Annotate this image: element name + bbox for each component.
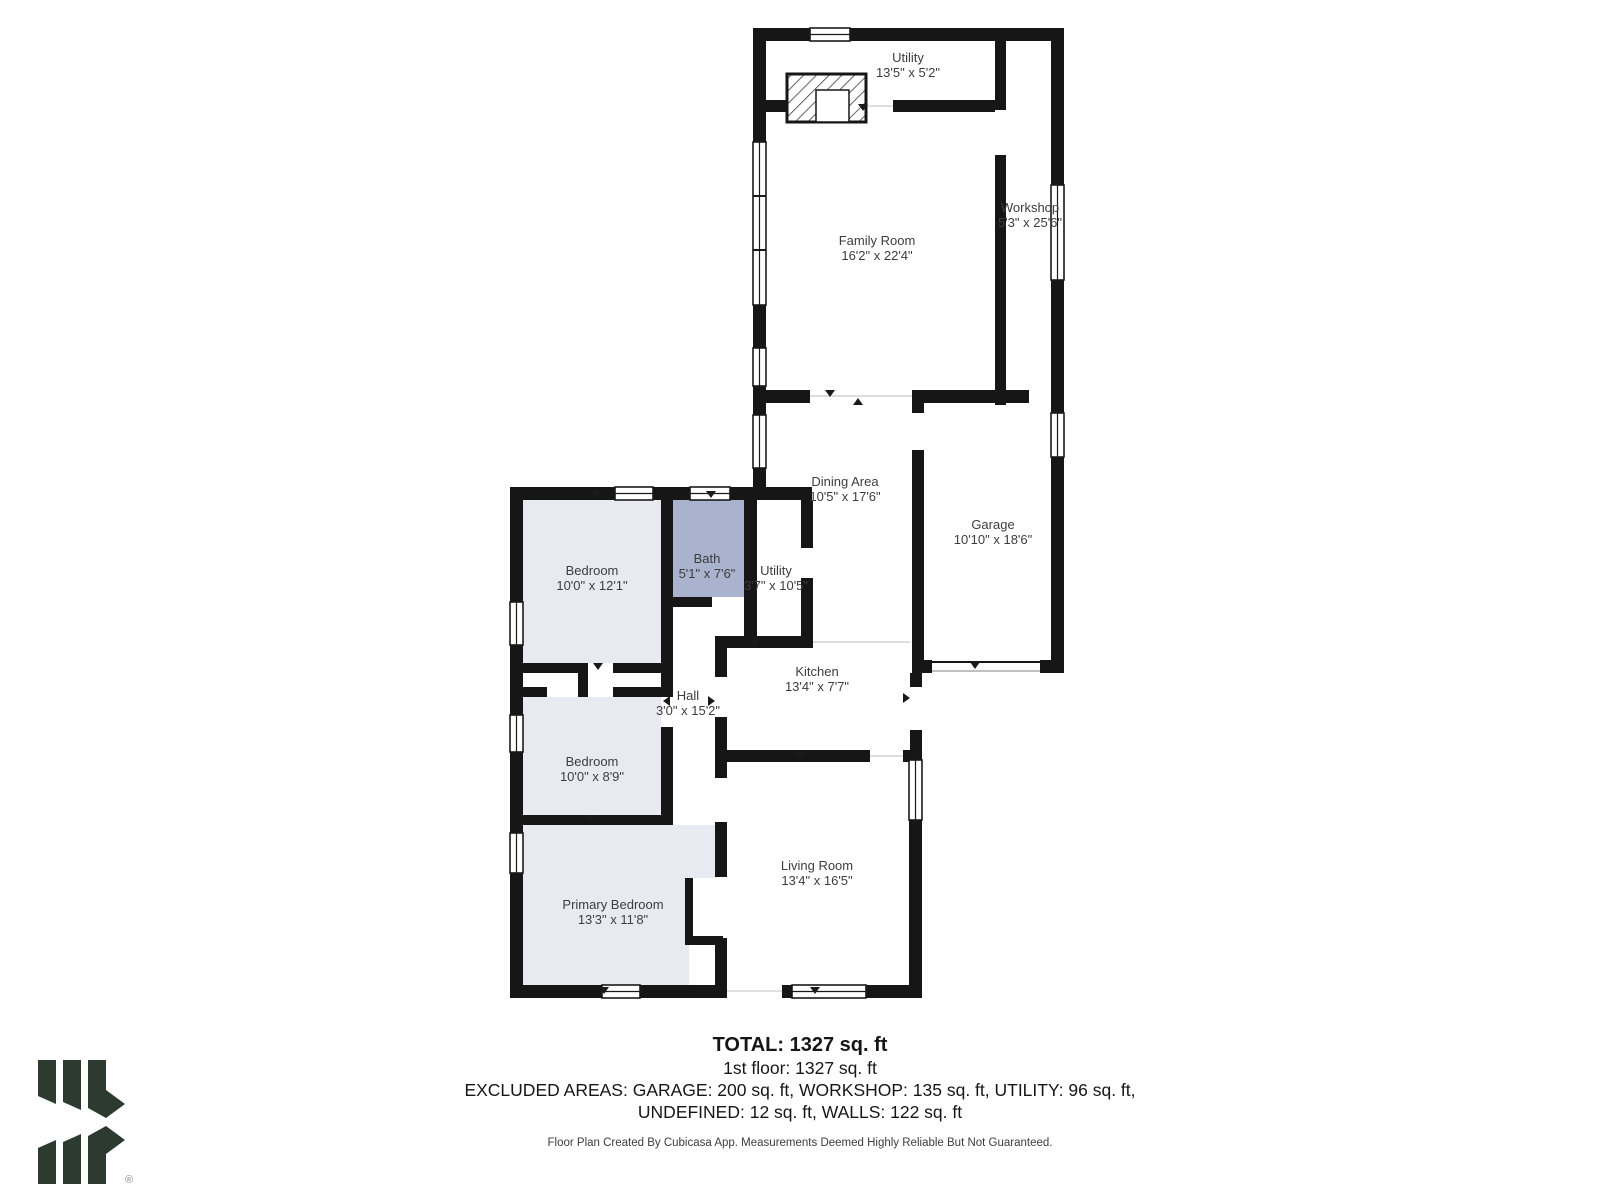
total-area: TOTAL: 1327 sq. ft (0, 1033, 1600, 1057)
fireplace (787, 74, 866, 122)
window (510, 833, 523, 873)
wall-segment (766, 390, 810, 403)
window (1051, 413, 1064, 457)
area-summary: TOTAL: 1327 sq. ft 1st floor: 1327 sq. f… (0, 1033, 1600, 1123)
wall-segment (995, 28, 1006, 110)
floor-plan-page: Utility 13'5" x 5'2" Family Room 16'2" x… (0, 0, 1600, 1200)
wall-segment (893, 100, 995, 112)
excluded-areas-line2: UNDEFINED: 12 sq. ft, WALLS: 122 sq. ft (0, 1101, 1600, 1123)
wall-segment (613, 687, 673, 697)
window (909, 760, 922, 820)
registered-mark-icon: ® (125, 1174, 133, 1186)
room-dims-bedroom-1: 10'0" x 12'1" (556, 578, 628, 593)
wall-segment (801, 500, 813, 548)
wall-segment (753, 28, 1064, 41)
wall-segment (909, 820, 922, 998)
room-dims-kitchen: 13'4" x 7'7" (785, 679, 849, 694)
room-label-bath: Bath (694, 551, 721, 566)
cubicasa-logo: ® (36, 1060, 136, 1186)
window (510, 602, 523, 645)
room-dims-bedroom-2: 10'0" x 8'9" (560, 769, 624, 784)
wall-segment (995, 155, 1006, 405)
room-label-workshop: Workshop (1001, 200, 1059, 215)
wall-segment (866, 985, 922, 998)
wall-segment (912, 660, 932, 673)
wall-segment (782, 985, 792, 998)
room-dims-hall: 3'0" x 15'2" (656, 703, 720, 718)
window (792, 985, 866, 998)
wall-segment (910, 730, 922, 762)
room-dims-utility-2: 3'7" x 10'5" (744, 578, 808, 593)
wall-segment (578, 663, 588, 697)
bath-fill (673, 500, 744, 597)
room-label-living-room: Living Room (781, 858, 853, 873)
wall-segment (912, 450, 924, 673)
wall-segment (912, 390, 1029, 403)
room-dims-garage: 10'10" x 18'6" (954, 532, 1033, 547)
disclaimer-text: Floor Plan Created By Cubicasa App. Meas… (0, 1137, 1600, 1149)
room-label-bedroom-2: Bedroom (566, 754, 619, 769)
window (753, 415, 766, 468)
wall-segment (685, 878, 693, 938)
room-label-garage: Garage (971, 517, 1014, 532)
window (753, 142, 766, 305)
wall-segment (1051, 28, 1064, 673)
room-label-dining-area: Dining Area (811, 474, 879, 489)
room-label-family-room: Family Room (839, 233, 916, 248)
first-floor-area: 1st floor: 1327 sq. ft (0, 1057, 1600, 1079)
wall-segment (715, 636, 727, 677)
wall-segment (640, 985, 727, 998)
wall-segment (510, 487, 812, 500)
wall-segment (523, 815, 673, 825)
garage-door (932, 660, 1040, 673)
room-dims-dining-area: 10'5" x 17'6" (809, 489, 881, 504)
room-dims-family-room: 16'2" x 22'4" (841, 248, 913, 263)
floor-plan: Utility 13'5" x 5'2" Family Room 16'2" x… (0, 0, 1600, 1200)
wall-segment (613, 663, 673, 673)
window (510, 715, 523, 752)
window (615, 487, 653, 500)
room-label-kitchen: Kitchen (795, 664, 838, 679)
room-label-hall: Hall (677, 688, 700, 703)
wall-segment (523, 687, 547, 697)
room-label-bedroom-1: Bedroom (566, 563, 619, 578)
wall-segment (744, 500, 757, 648)
room-label-primary-bedroom: Primary Bedroom (562, 897, 663, 912)
window (810, 28, 850, 41)
window (753, 348, 766, 386)
room-label-utility-top: Utility (892, 50, 924, 65)
room-dims-primary-bedroom: 13'3" x 11'8" (578, 912, 649, 927)
room-dims-utility-top: 13'5" x 5'2" (876, 65, 940, 80)
excluded-areas-line1: EXCLUDED AREAS: GARAGE: 200 sq. ft, WORK… (0, 1079, 1600, 1101)
wall-segment (715, 717, 727, 778)
room-dims-bath: 5'1" x 7'6" (679, 566, 736, 581)
wall-segment (510, 985, 602, 998)
room-dims-living-room: 13'4" x 16'5" (781, 873, 853, 888)
window (602, 985, 640, 998)
wall-segment (912, 390, 924, 413)
wall-segment (661, 727, 673, 825)
room-dims-workshop: 5'3" x 25'6" (998, 215, 1062, 230)
wall-segment (523, 663, 583, 673)
wall-segment (727, 636, 813, 648)
logo-mark-icon (38, 1060, 125, 1184)
wall-segment (715, 822, 727, 877)
wall-segment (685, 936, 723, 945)
wall-segment (910, 673, 922, 687)
wall-segment (766, 100, 787, 112)
wall-segment (1040, 660, 1064, 673)
room-label-utility-2: Utility (760, 563, 792, 578)
